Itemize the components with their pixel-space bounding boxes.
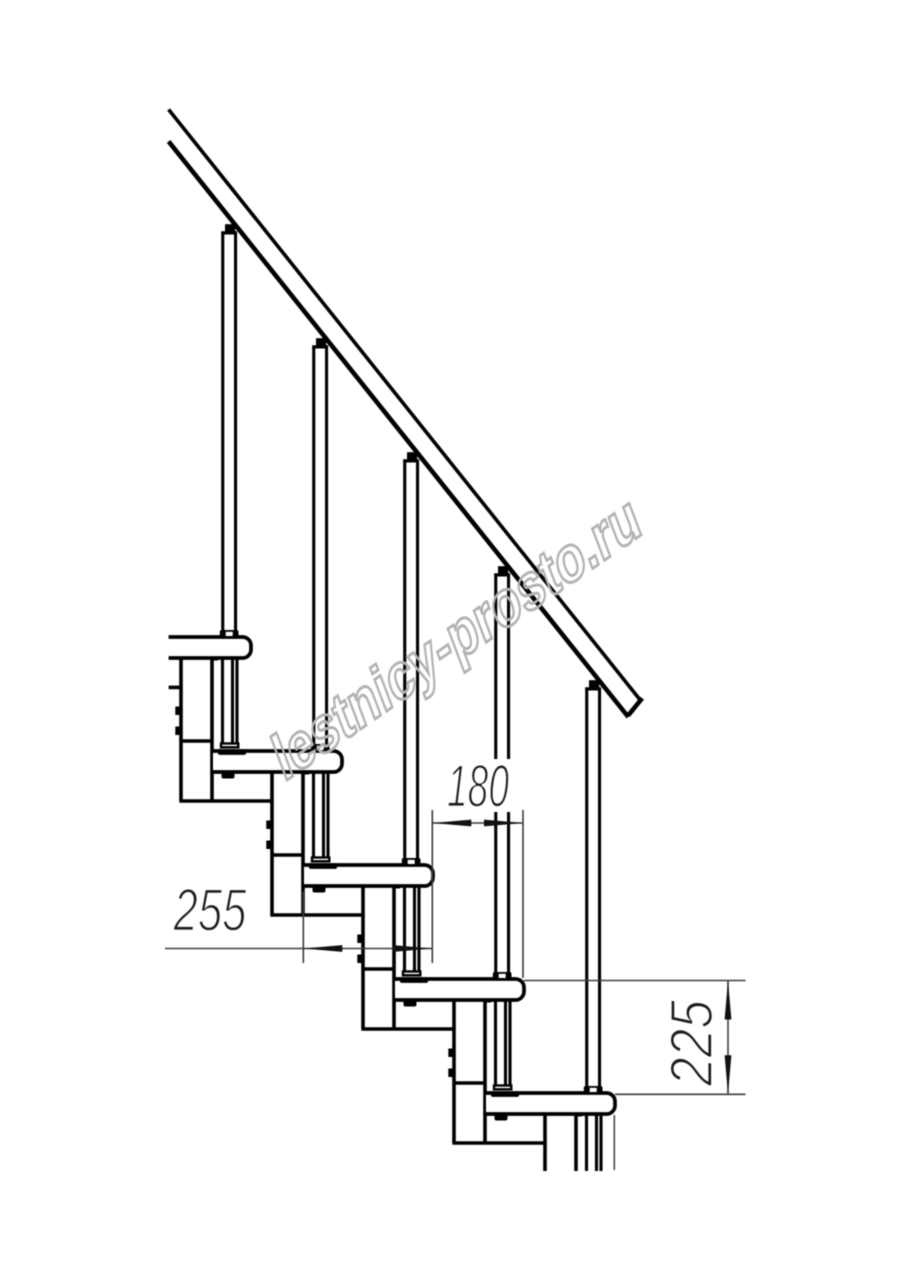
svg-text:255: 255 [173,877,247,944]
svg-text:180: 180 [447,753,509,820]
svg-text:225: 225 [658,999,725,1086]
